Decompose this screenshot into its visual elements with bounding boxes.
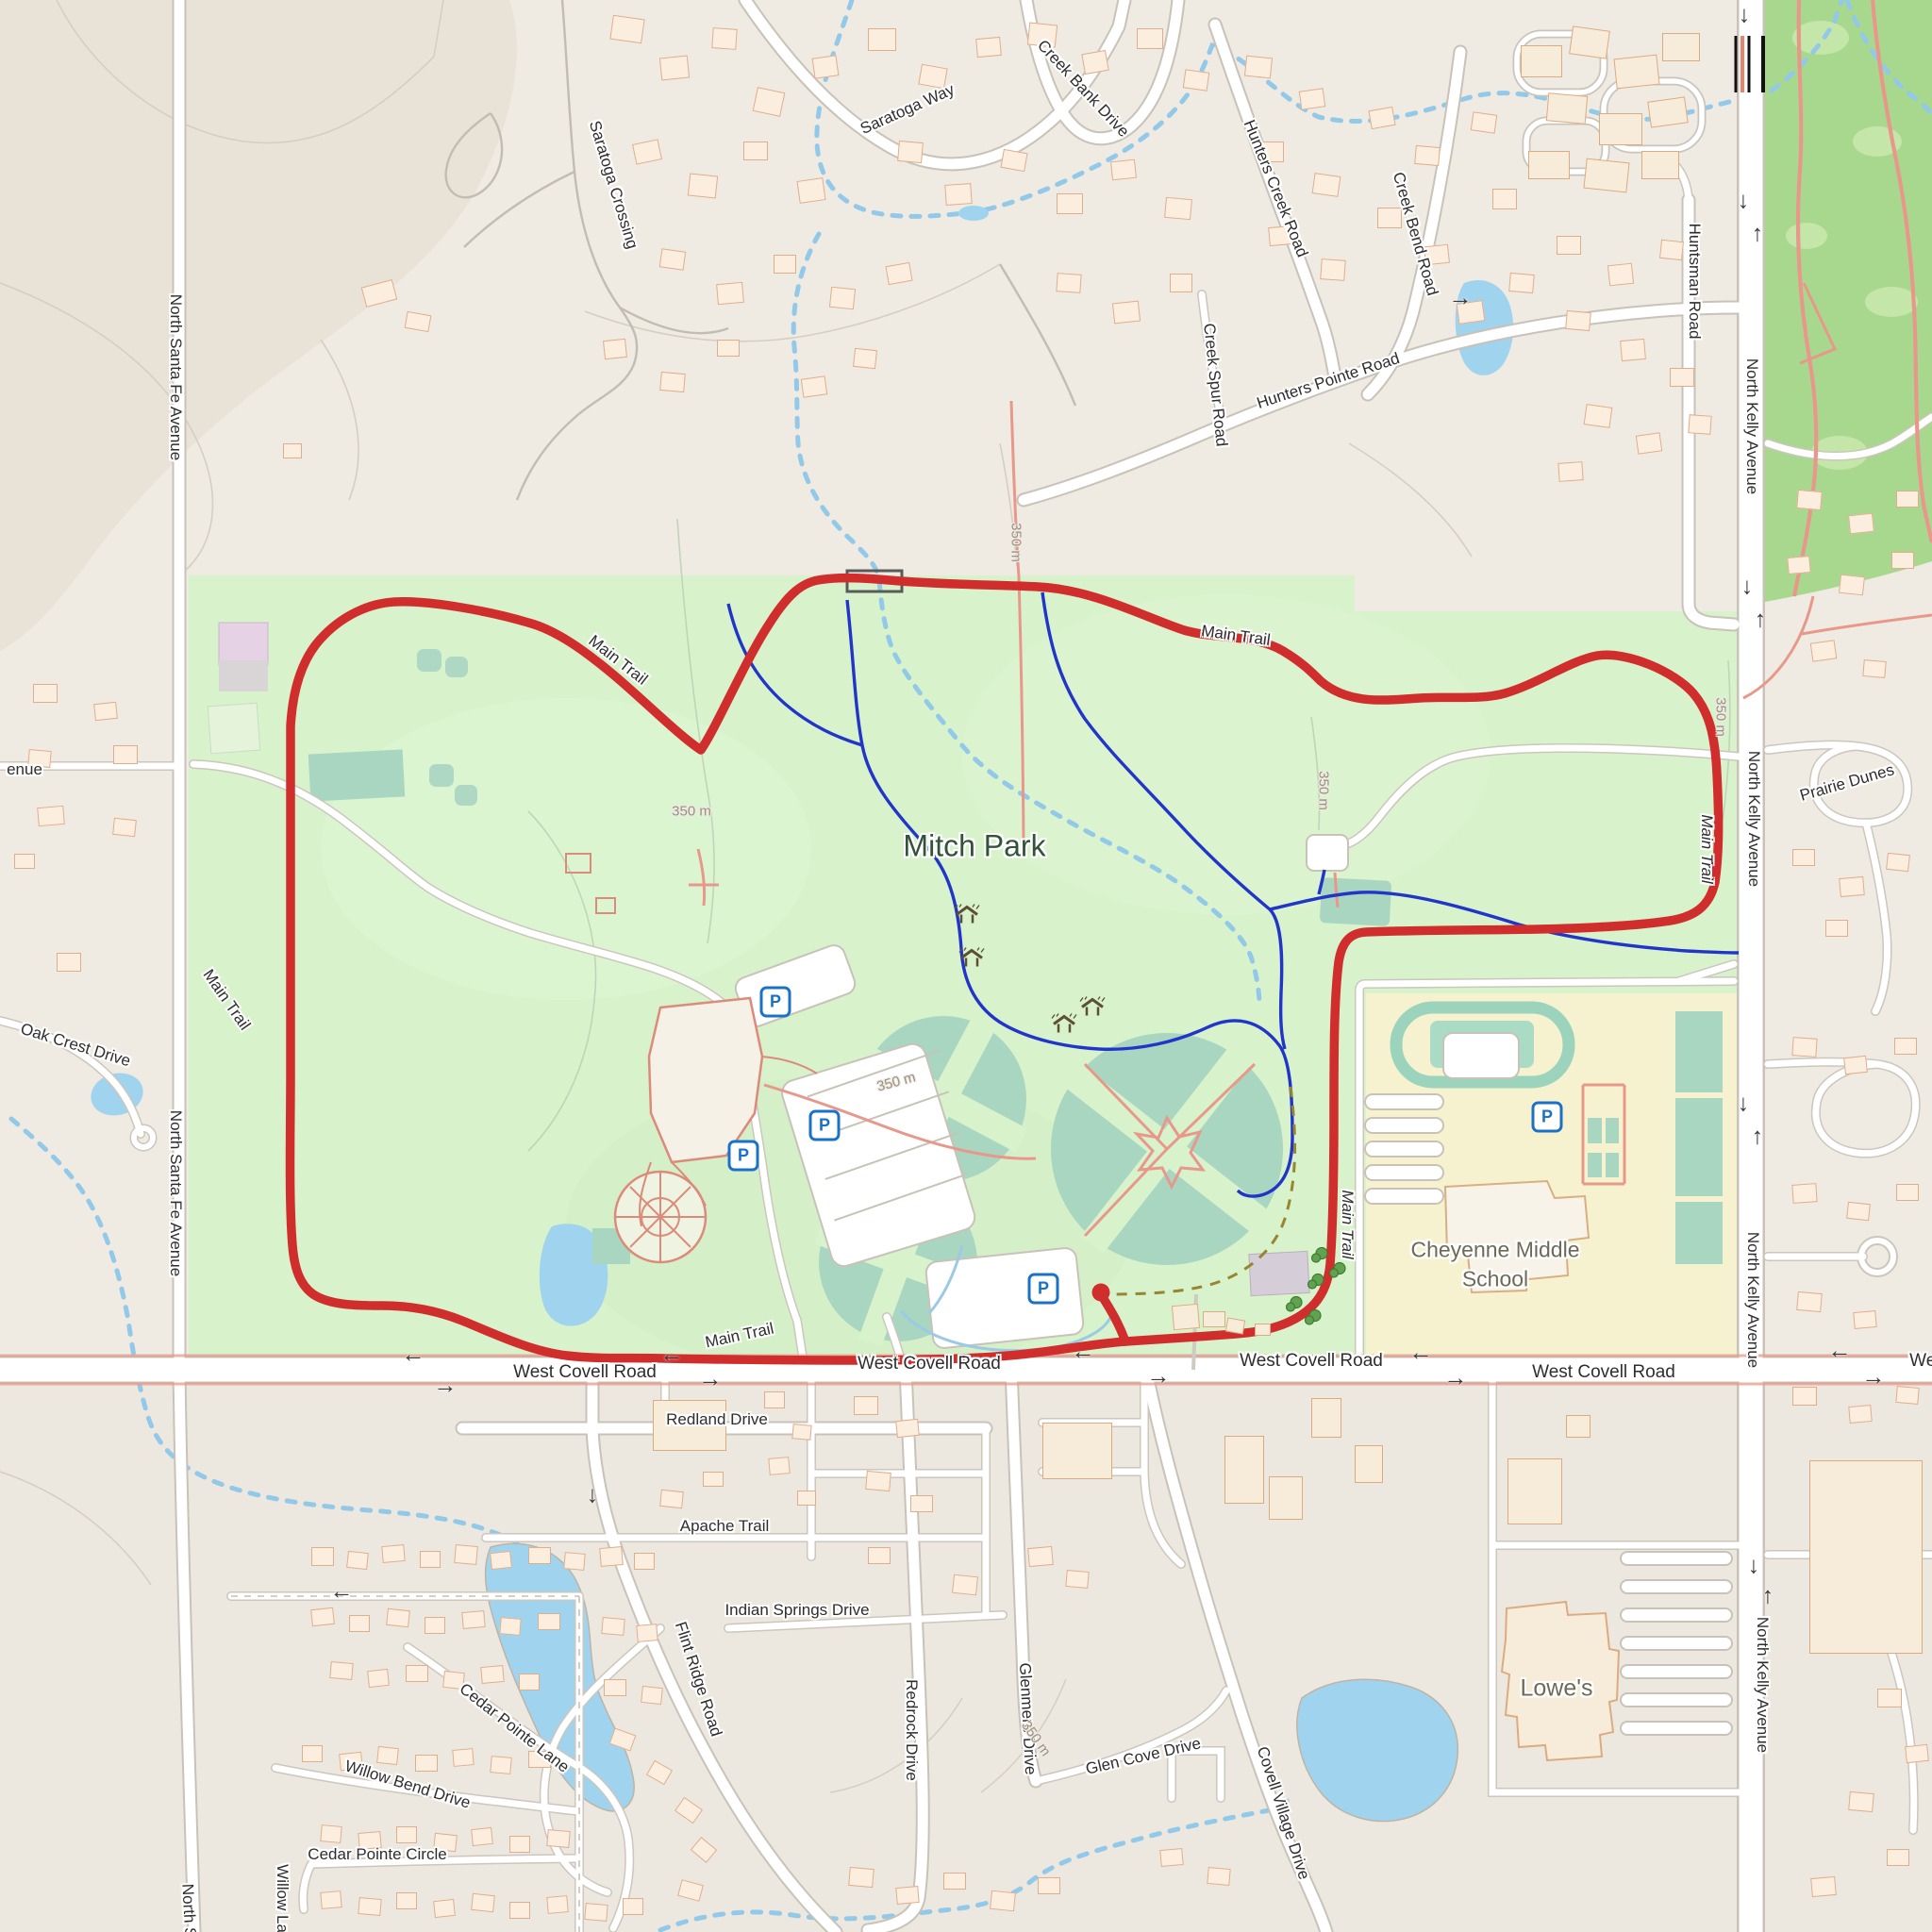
house bbox=[454, 1544, 478, 1565]
building bbox=[1641, 151, 1679, 179]
oneway-arrow-icon: ↓ bbox=[587, 1482, 599, 1509]
house bbox=[943, 1873, 966, 1890]
building bbox=[1203, 1311, 1225, 1327]
oneway-arrow-icon: ↑ bbox=[1755, 607, 1767, 634]
building bbox=[1566, 1415, 1591, 1438]
oneway-arrow-icon: ← bbox=[1409, 1340, 1433, 1367]
house bbox=[519, 1674, 540, 1690]
tree-icon bbox=[1304, 1309, 1323, 1333]
house bbox=[1810, 640, 1838, 661]
label-cedar-pointe-circle: Cedar Pointe Circle bbox=[308, 1845, 446, 1864]
house bbox=[349, 1615, 370, 1632]
creek-pond bbox=[958, 206, 989, 221]
house bbox=[386, 1608, 410, 1627]
west-court bbox=[308, 749, 405, 801]
house bbox=[703, 1472, 724, 1487]
house bbox=[1905, 1744, 1929, 1763]
house bbox=[975, 37, 1002, 58]
house bbox=[1791, 1183, 1817, 1204]
golf-course-area bbox=[1765, 0, 1932, 602]
house bbox=[636, 1624, 658, 1642]
parking-icon: P bbox=[809, 1110, 841, 1141]
building bbox=[1569, 25, 1610, 58]
building bbox=[1647, 96, 1689, 127]
oneway-arrow-icon: ↑ bbox=[1752, 1124, 1764, 1151]
house bbox=[897, 141, 924, 163]
house bbox=[952, 1574, 978, 1596]
house bbox=[1000, 149, 1027, 172]
house bbox=[509, 1836, 530, 1853]
label-north-santa-fe-avenue-1: North Santa Fe Avenue bbox=[166, 294, 185, 460]
house bbox=[367, 1669, 390, 1688]
oneway-arrow-icon: ↓ bbox=[1748, 1553, 1760, 1580]
label-north-kelly-avenue-2: North Kelly Avenue bbox=[1744, 751, 1763, 887]
house bbox=[1557, 236, 1581, 255]
parking-icon: P bbox=[728, 1141, 759, 1172]
school-name-line1: Cheyenne Middle bbox=[1410, 1238, 1579, 1263]
tree-icon bbox=[1307, 1274, 1325, 1297]
house bbox=[433, 1899, 456, 1918]
house bbox=[601, 1617, 625, 1636]
oneway-arrow-icon: ↑ bbox=[1752, 221, 1764, 248]
house bbox=[1853, 1310, 1876, 1329]
house bbox=[895, 1419, 920, 1438]
contour-label: 350 m bbox=[672, 804, 711, 820]
house bbox=[1112, 301, 1141, 325]
oneway-arrow-icon: ← bbox=[1828, 1338, 1852, 1365]
house bbox=[1320, 258, 1345, 281]
house bbox=[57, 953, 81, 972]
house bbox=[1299, 88, 1326, 109]
house bbox=[381, 1544, 405, 1563]
house bbox=[716, 282, 744, 305]
tree-icon bbox=[1285, 1296, 1304, 1320]
house bbox=[396, 1826, 417, 1843]
house bbox=[546, 1829, 570, 1848]
house bbox=[1688, 414, 1711, 435]
house bbox=[609, 15, 644, 43]
building bbox=[1507, 1458, 1562, 1524]
house bbox=[634, 1553, 655, 1570]
label-west-covell-road-5: West Covell Road bbox=[1909, 1351, 1932, 1372]
house bbox=[480, 1665, 504, 1684]
label-north-kelly-avenue-4: North Kelly Avenue bbox=[1753, 1617, 1772, 1753]
house bbox=[546, 1895, 568, 1914]
house bbox=[796, 177, 825, 204]
house bbox=[1862, 659, 1886, 678]
house bbox=[829, 287, 856, 310]
building bbox=[1528, 151, 1570, 179]
building bbox=[1269, 1476, 1303, 1520]
map-canvas[interactable]: Mitch Park Cheyenne Middle School Lowe's… bbox=[0, 0, 1932, 1932]
label-apache-trail: Apache Trail bbox=[680, 1517, 770, 1536]
house bbox=[688, 173, 718, 198]
oneway-arrow-icon: ↓ bbox=[1738, 188, 1750, 215]
house bbox=[490, 1551, 512, 1570]
northeast-building bbox=[1307, 835, 1348, 871]
house bbox=[1636, 432, 1663, 454]
house bbox=[584, 1903, 608, 1922]
house bbox=[774, 255, 796, 274]
house bbox=[910, 1495, 933, 1512]
house bbox=[1137, 28, 1163, 49]
house bbox=[37, 806, 65, 826]
oneway-arrow-icon: ↓ bbox=[1739, 2, 1751, 29]
oneway-arrow-icon: → bbox=[1862, 1364, 1886, 1391]
house bbox=[415, 1755, 438, 1772]
label-redrock-drive: Redrock Drive bbox=[902, 1679, 921, 1781]
house bbox=[1891, 552, 1914, 569]
house bbox=[797, 1491, 816, 1506]
house bbox=[490, 1756, 511, 1774]
house bbox=[1839, 876, 1865, 897]
house bbox=[329, 1661, 353, 1680]
house bbox=[865, 1471, 891, 1491]
oneway-arrow-icon: → bbox=[434, 1373, 458, 1400]
house bbox=[848, 1867, 874, 1888]
house bbox=[1825, 920, 1848, 937]
house bbox=[717, 340, 740, 357]
label-huntsman-road: Huntsman Road bbox=[1685, 224, 1704, 340]
house bbox=[659, 248, 687, 270]
house bbox=[812, 55, 840, 78]
house bbox=[1848, 1791, 1874, 1812]
house bbox=[1081, 50, 1108, 75]
building bbox=[1255, 1324, 1271, 1336]
house bbox=[320, 1890, 341, 1909]
house bbox=[743, 142, 768, 160]
house bbox=[1027, 1546, 1054, 1567]
building bbox=[1613, 55, 1659, 90]
house bbox=[1894, 1038, 1917, 1055]
label-north-santa-fe-avenue-2: North Santa Fe Avenue bbox=[166, 1110, 185, 1276]
tree-icon bbox=[1310, 1247, 1329, 1271]
oneway-arrow-icon: ↓ bbox=[1741, 574, 1754, 601]
house bbox=[1557, 461, 1583, 482]
house bbox=[1607, 263, 1634, 287]
house bbox=[1110, 159, 1137, 181]
label-willow-lane: Willow Lane bbox=[273, 1864, 291, 1932]
house bbox=[853, 348, 877, 369]
gray-building bbox=[1249, 1251, 1309, 1295]
house bbox=[1792, 1387, 1817, 1406]
parking-icon: P bbox=[1532, 1102, 1563, 1133]
oneway-arrow-icon: → bbox=[1449, 285, 1473, 312]
label-west-covell-road-2: West Covell Road bbox=[858, 1354, 1001, 1374]
house bbox=[1659, 240, 1684, 260]
house bbox=[1896, 1184, 1919, 1201]
house bbox=[509, 1902, 530, 1919]
picnic-shelter-icon bbox=[1078, 995, 1107, 1024]
house bbox=[1791, 1037, 1817, 1058]
building bbox=[1355, 1445, 1383, 1483]
house bbox=[604, 1679, 626, 1696]
house bbox=[420, 1551, 441, 1568]
house bbox=[376, 1746, 399, 1765]
building bbox=[1521, 45, 1562, 77]
oneway-arrow-icon: ← bbox=[402, 1341, 425, 1369]
oneway-arrow-icon: ← bbox=[1072, 1339, 1095, 1366]
house bbox=[112, 818, 137, 837]
house bbox=[1244, 56, 1273, 79]
oneway-arrow-icon: → bbox=[1444, 1365, 1468, 1392]
lowes-store-label: Lowe's bbox=[1520, 1675, 1592, 1703]
house bbox=[1584, 404, 1613, 428]
house bbox=[641, 1686, 663, 1705]
picnic-shelter-icon bbox=[1050, 1012, 1078, 1041]
house bbox=[659, 372, 686, 392]
house bbox=[1170, 274, 1192, 292]
building bbox=[1583, 158, 1629, 193]
picnic-shelter-icon bbox=[958, 946, 986, 975]
house bbox=[528, 1547, 551, 1564]
contour-label: 350 m bbox=[1713, 697, 1729, 737]
oneway-arrow-icon: ← bbox=[330, 1578, 354, 1606]
main-trail-label: Main Trail bbox=[1338, 1190, 1357, 1258]
label-north-kelly-avenue-1: North Kelly Avenue bbox=[1742, 358, 1761, 494]
oneway-arrow-icon: → bbox=[699, 1366, 723, 1393]
house bbox=[1565, 310, 1591, 331]
house bbox=[1620, 339, 1646, 361]
house bbox=[1183, 69, 1210, 91]
house bbox=[711, 27, 737, 50]
oneway-arrow-icon: ↑ bbox=[1762, 1583, 1774, 1610]
house bbox=[801, 375, 828, 397]
house bbox=[113, 745, 138, 764]
house bbox=[1164, 197, 1192, 220]
house bbox=[406, 1665, 428, 1682]
house bbox=[1887, 1849, 1909, 1866]
label-avenue-partial: enue bbox=[7, 760, 42, 779]
house bbox=[1038, 1877, 1060, 1894]
label-west-covell-road-1: West Covell Road bbox=[513, 1362, 657, 1383]
house bbox=[1312, 173, 1341, 197]
house bbox=[1065, 1570, 1089, 1589]
house bbox=[1508, 273, 1535, 293]
label-west-covell-road-3: West Covell Road bbox=[1240, 1351, 1383, 1372]
house bbox=[1839, 575, 1865, 596]
house bbox=[1848, 513, 1874, 535]
northeast-pool bbox=[1320, 877, 1391, 926]
house bbox=[471, 1827, 493, 1846]
terrain-shade-south bbox=[0, 1385, 1932, 1932]
house bbox=[1492, 189, 1517, 209]
parking-icon: P bbox=[760, 987, 791, 1018]
house bbox=[1896, 491, 1919, 508]
picnic-shelter-icon bbox=[953, 903, 981, 932]
building bbox=[1546, 92, 1588, 125]
contour-label: 350 m bbox=[1008, 523, 1024, 562]
house bbox=[764, 1391, 785, 1408]
house bbox=[302, 1745, 323, 1762]
house bbox=[1787, 556, 1810, 575]
house bbox=[1159, 1848, 1183, 1867]
house bbox=[659, 55, 690, 80]
house bbox=[1471, 111, 1498, 133]
house bbox=[659, 1490, 684, 1508]
house bbox=[1057, 193, 1083, 214]
house bbox=[603, 339, 627, 359]
house bbox=[868, 28, 896, 51]
house bbox=[1810, 1876, 1837, 1897]
house bbox=[1796, 490, 1823, 510]
house bbox=[471, 1893, 495, 1912]
house bbox=[1792, 849, 1815, 866]
house bbox=[854, 1396, 878, 1415]
building bbox=[1224, 1436, 1264, 1504]
house bbox=[895, 1886, 919, 1905]
house bbox=[1895, 1386, 1919, 1405]
label-north-kelly-avenue-3: North Kelly Avenue bbox=[1743, 1232, 1762, 1368]
house bbox=[93, 702, 118, 721]
school-name-line2: School bbox=[1462, 1267, 1528, 1292]
house bbox=[1886, 853, 1910, 872]
label-indian-springs-drive: Indian Springs Drive bbox=[724, 1601, 869, 1620]
house bbox=[1056, 273, 1081, 293]
oneway-arrow-icon: ↓ bbox=[1738, 1091, 1750, 1118]
house bbox=[358, 1897, 381, 1916]
main-trail-label: Main Trail bbox=[1697, 814, 1716, 883]
park-name-label: Mitch Park bbox=[903, 829, 1045, 864]
parking-icon: P bbox=[1028, 1274, 1059, 1305]
label-redland-drive: Redland Drive bbox=[666, 1410, 768, 1429]
building bbox=[1042, 1423, 1112, 1479]
house bbox=[346, 1551, 369, 1570]
building bbox=[1662, 33, 1700, 61]
ballfield-northeast bbox=[1051, 1033, 1283, 1265]
tree-icon bbox=[1328, 1262, 1347, 1286]
oneway-arrow-icon: ← bbox=[660, 1341, 684, 1369]
house bbox=[1877, 1689, 1902, 1707]
house bbox=[1846, 1202, 1871, 1221]
building bbox=[1172, 1304, 1200, 1330]
house bbox=[1848, 1405, 1872, 1424]
house bbox=[1843, 1056, 1868, 1074]
house bbox=[311, 1547, 334, 1566]
house bbox=[768, 1457, 790, 1475]
building bbox=[1599, 113, 1642, 145]
contour-label: 350 m bbox=[1316, 771, 1332, 810]
house bbox=[538, 1613, 560, 1630]
house bbox=[33, 684, 58, 703]
house bbox=[1670, 368, 1694, 387]
label-west-covell-road-4: West Covell Road bbox=[1532, 1362, 1675, 1383]
house bbox=[310, 1607, 335, 1626]
house bbox=[791, 1424, 811, 1441]
house bbox=[868, 1547, 891, 1564]
house bbox=[944, 183, 972, 206]
house bbox=[14, 854, 35, 869]
house bbox=[425, 1617, 445, 1634]
house bbox=[499, 1617, 521, 1636]
house bbox=[461, 1610, 485, 1629]
house bbox=[599, 1546, 624, 1567]
house bbox=[990, 1890, 1016, 1912]
oneway-arrow-icon: → bbox=[1147, 1363, 1171, 1391]
house bbox=[283, 443, 302, 458]
house bbox=[452, 1748, 474, 1767]
house bbox=[1796, 1291, 1823, 1312]
house bbox=[1207, 1867, 1230, 1886]
house bbox=[563, 1552, 585, 1571]
building bbox=[1225, 1317, 1245, 1334]
house bbox=[623, 1898, 643, 1915]
trail-endpoint-dot bbox=[1092, 1284, 1110, 1302]
house bbox=[320, 1824, 341, 1843]
event-building bbox=[219, 623, 268, 665]
building bbox=[1311, 1398, 1341, 1438]
house bbox=[1414, 145, 1441, 166]
house bbox=[396, 1892, 417, 1909]
building bbox=[1809, 1460, 1923, 1654]
